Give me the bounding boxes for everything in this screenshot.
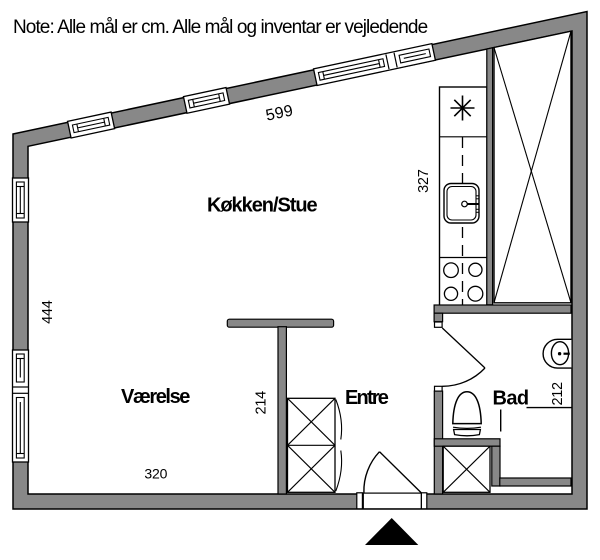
svg-text:Køkken/Stue: Køkken/Stue [207,195,318,217]
svg-text:212: 212 [550,382,566,406]
svg-text:Note: Alle mål er cm. Alle mål: Note: Alle mål er cm. Alle mål og invent… [13,17,428,38]
svg-text:Bad: Bad [493,388,529,410]
svg-text:327: 327 [416,169,432,193]
svg-text:Værelse: Værelse [121,386,190,408]
svg-text:444: 444 [40,300,56,324]
svg-text:320: 320 [144,466,167,482]
svg-text:Entre: Entre [345,387,389,409]
svg-text:214: 214 [254,391,270,415]
